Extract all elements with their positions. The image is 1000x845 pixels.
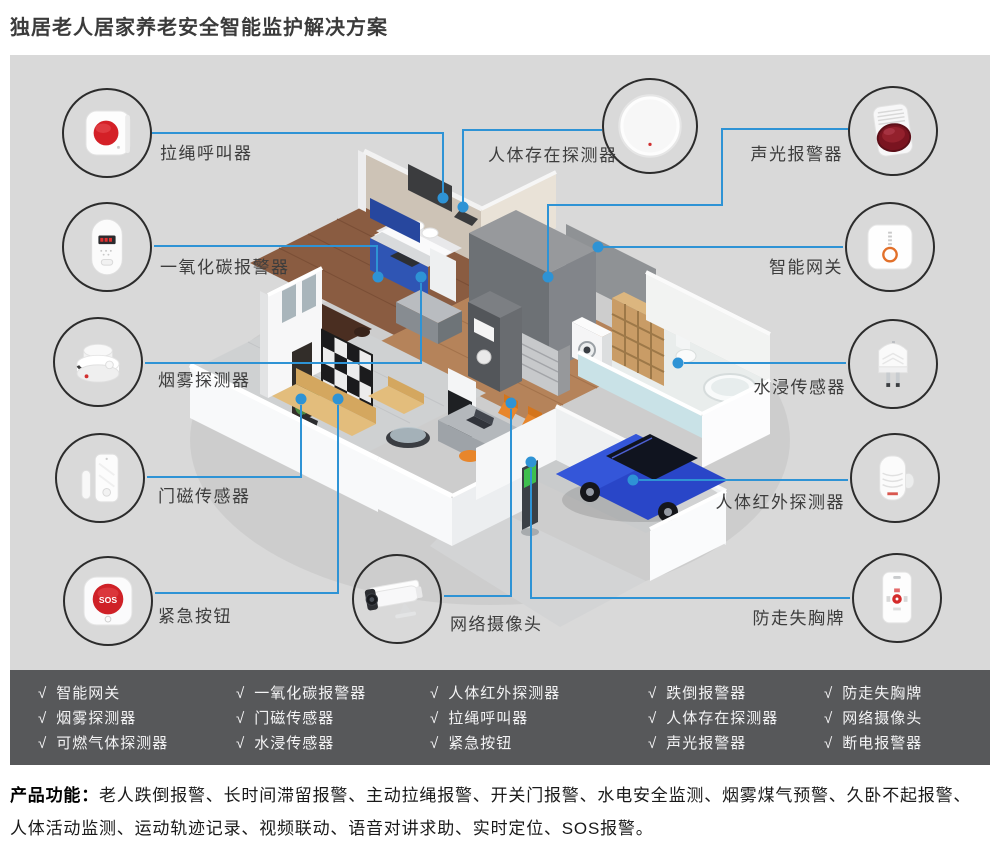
anti-loss-badge-icon: [854, 555, 940, 641]
smoke-detector-icon: [55, 319, 141, 405]
product-label: 网络摄像头: [842, 710, 922, 727]
door-magnet-icon: [57, 435, 143, 521]
device-pir-detector: [850, 433, 940, 523]
product-item: √人体存在探测器: [648, 706, 778, 731]
product-item: √网络摄像头: [824, 706, 922, 731]
network-camera-icon: [354, 556, 440, 642]
device-anti-loss-badge: [852, 553, 942, 643]
device-smart-gateway: [845, 202, 935, 292]
product-item: √人体红外探测器: [430, 681, 560, 706]
pull-cord-caller-icon: [64, 90, 150, 176]
presence-detector-icon: [604, 80, 696, 172]
check-icon: √: [38, 710, 47, 727]
product-item: √门磁传感器: [236, 706, 366, 731]
device-label-door-magnet: 门磁传感器: [158, 482, 251, 507]
device-label-emergency: 紧急按钮: [158, 602, 232, 627]
check-icon: √: [648, 685, 657, 702]
device-label-smoke: 烟雾探测器: [158, 366, 251, 391]
product-label: 声光报警器: [666, 735, 746, 752]
product-item: √一氧化碳报警器: [236, 681, 366, 706]
check-icon: √: [824, 735, 833, 752]
product-label: 人体红外探测器: [448, 685, 560, 702]
check-icon: √: [236, 685, 245, 702]
product-item: √防走失胸牌: [824, 681, 922, 706]
device-smoke-detector: [53, 317, 143, 407]
product-label: 门磁传感器: [254, 710, 334, 727]
check-icon: √: [38, 685, 47, 702]
features-body: 老人跌倒报警、长时间滞留报警、主动拉绳报警、开关门报警、水电安全监测、烟雾煤气预…: [10, 786, 971, 838]
product-item: √声光报警器: [648, 731, 778, 756]
water-leak-sensor-icon: [850, 321, 936, 407]
device-network-camera: [352, 554, 442, 644]
device-label-badge: 防走失胸牌: [700, 604, 845, 629]
product-list-bar: √智能网关 √烟雾探测器 √可燃气体探测器 √一氧化碳报警器 √门磁传感器 √水…: [10, 670, 990, 765]
product-column-1: √智能网关 √烟雾探测器 √可燃气体探测器: [38, 681, 168, 756]
product-column-3: √人体红外探测器 √拉绳呼叫器 √紧急按钮: [430, 681, 560, 756]
check-icon: √: [430, 710, 439, 727]
product-column-4: √跌倒报警器 √人体存在探测器 √声光报警器: [648, 681, 778, 756]
check-icon: √: [648, 710, 657, 727]
device-pull-cord-caller: [62, 88, 152, 178]
device-co-alarm: [62, 202, 152, 292]
check-icon: √: [236, 710, 245, 727]
check-icon: √: [824, 685, 833, 702]
product-item: √跌倒报警器: [648, 681, 778, 706]
device-sound-light-alarm: [848, 86, 938, 176]
product-label: 可燃气体探测器: [56, 735, 168, 752]
product-label: 一氧化碳报警器: [254, 685, 366, 702]
device-label-sound-light: 声光报警器: [700, 140, 843, 165]
check-icon: √: [430, 685, 439, 702]
sos-text: SOS: [99, 595, 117, 605]
sound-light-alarm-icon: [850, 88, 936, 174]
check-icon: √: [824, 710, 833, 727]
product-label: 紧急按钮: [448, 735, 512, 752]
product-label: 水浸传感器: [254, 735, 334, 752]
product-label: 跌倒报警器: [666, 685, 746, 702]
product-label: 智能网关: [56, 685, 120, 702]
device-label-co-alarm: 一氧化碳报警器: [160, 253, 290, 278]
product-label: 烟雾探测器: [56, 710, 136, 727]
device-door-magnet-sensor: [55, 433, 145, 523]
product-label: 拉绳呼叫器: [448, 710, 528, 727]
product-item: √烟雾探测器: [38, 706, 168, 731]
check-icon: √: [430, 735, 439, 752]
device-emergency-button: SOS: [63, 556, 153, 646]
product-label: 断电报警器: [842, 735, 922, 752]
product-item: √紧急按钮: [430, 731, 560, 756]
device-label-water: 水浸传感器: [700, 373, 846, 398]
device-label-pir: 人体红外探测器: [690, 488, 845, 513]
check-icon: √: [648, 735, 657, 752]
page-title: 独居老人居家养老安全智能监护解决方案: [10, 11, 388, 40]
check-icon: √: [236, 735, 245, 752]
check-icon: √: [38, 735, 47, 752]
pir-detector-icon: [852, 435, 938, 521]
product-column-2: √一氧化碳报警器 √门磁传感器 √水浸传感器: [236, 681, 366, 756]
device-water-leak-sensor: [848, 319, 938, 409]
product-item: √断电报警器: [824, 731, 922, 756]
co-alarm-icon: [64, 204, 150, 290]
product-label: 防走失胸牌: [842, 685, 922, 702]
product-item: √智能网关: [38, 681, 168, 706]
features-text: 产品功能：老人跌倒报警、长时间滞留报警、主动拉绳报警、开关门报警、水电安全监测、…: [10, 779, 988, 845]
device-label-presence: 人体存在探测器: [488, 141, 618, 166]
product-item: √可燃气体探测器: [38, 731, 168, 756]
smart-gateway-icon: [847, 204, 933, 290]
product-item: √水浸传感器: [236, 731, 366, 756]
emergency-button-icon: SOS: [65, 558, 151, 644]
features-heading: 产品功能：: [10, 786, 99, 805]
product-item: √拉绳呼叫器: [430, 706, 560, 731]
device-label-camera: 网络摄像头: [450, 610, 543, 635]
device-label-pull-cord: 拉绳呼叫器: [160, 139, 253, 164]
device-label-gateway: 智能网关: [700, 253, 843, 278]
product-label: 人体存在探测器: [666, 710, 778, 727]
product-column-5: √防走失胸牌 √网络摄像头 √断电报警器: [824, 681, 922, 756]
